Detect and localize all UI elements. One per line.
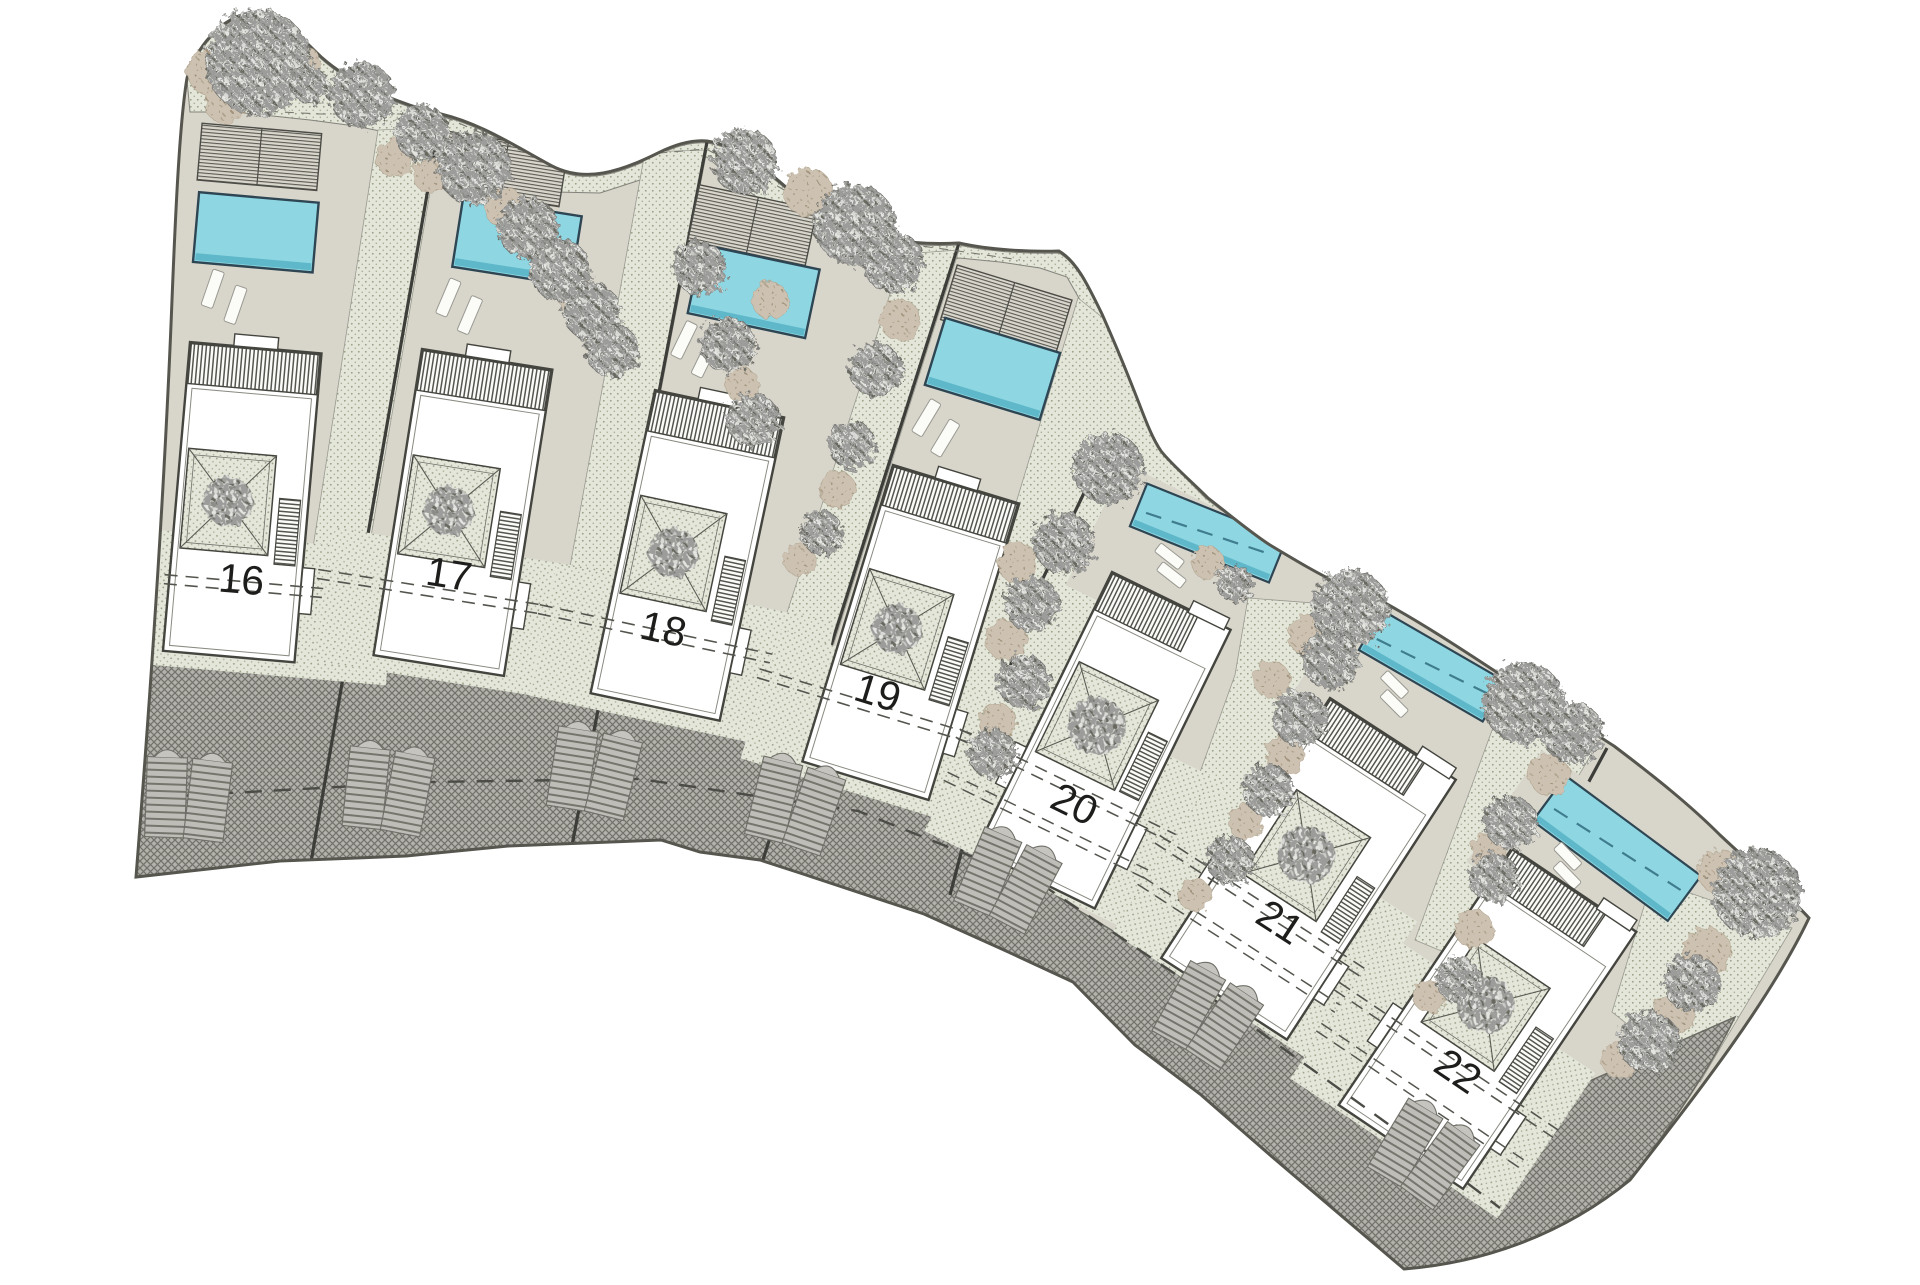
svg-text:17: 17 [423,548,475,601]
svg-text:16: 16 [217,554,266,604]
svg-text:18: 18 [636,602,690,656]
